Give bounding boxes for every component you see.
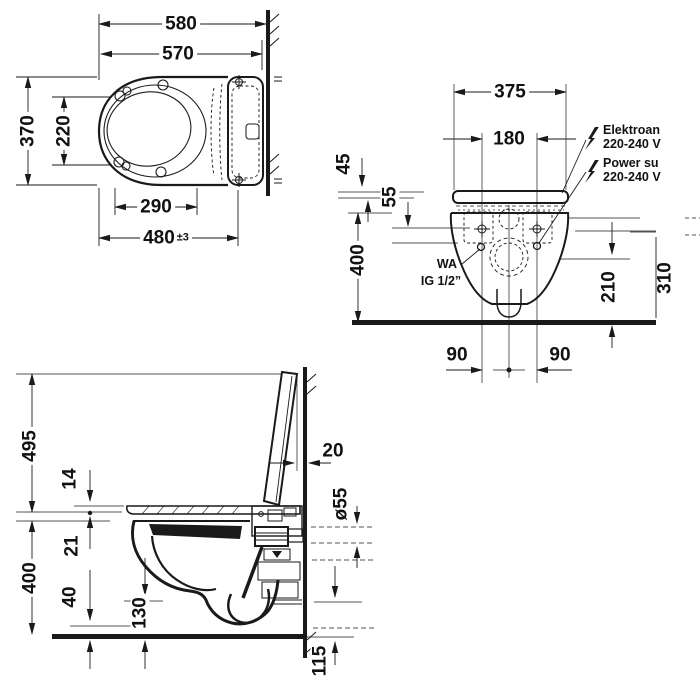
technical-drawing-page: 580 570 370 220 290 480±3 375 180 45 55 … (0, 0, 700, 700)
dim-label-210: 210 (600, 268, 619, 306)
dim-label-180: 180 (490, 130, 528, 149)
lightning-icon (585, 127, 599, 150)
dim-label-55: 55 (381, 183, 400, 210)
dim-label-20: 20 (319, 442, 346, 461)
dim-label-220: 220 (55, 112, 74, 150)
dim-label-14: 14 (61, 465, 80, 492)
dim-label-480-value: 480 (143, 228, 175, 249)
side-view (16, 367, 376, 669)
electrical-connection-label-line2: 220-240 V (603, 138, 661, 151)
water-connection-label-line2: IG 1/2” (421, 275, 461, 288)
floor-line-side-view (52, 634, 303, 639)
toilet-top-view (99, 75, 263, 187)
lightning-icon (585, 160, 599, 183)
dim-label-400-front: 400 (349, 241, 368, 279)
dim-label-290: 290 (137, 198, 175, 217)
cropped-edge-mask (671, 246, 700, 312)
electrical-connection-label-line1: Elektroan (603, 124, 660, 137)
dim-label-495: 495 (21, 427, 40, 465)
dim-label-45: 45 (335, 150, 354, 177)
power-supply-label-line1: Power su (603, 157, 659, 170)
dim-label-115: 115 (311, 643, 330, 680)
power-supply-label-line2: 220-240 V (603, 171, 661, 184)
toilet-front-view (451, 191, 569, 317)
dim-label-570: 570 (159, 45, 197, 64)
technical-drawing-canvas (0, 0, 700, 700)
open-lid-side-view (264, 372, 297, 505)
dim-label-480-tolerance: ±3 (175, 232, 189, 244)
wall-section-side-view (303, 367, 316, 658)
dim-label-90-right: 90 (546, 346, 573, 365)
dim-label-outlet-diameter: ø55 (332, 485, 351, 524)
water-connection-label-line1: WA (437, 258, 457, 271)
dim-label-21: 21 (63, 532, 82, 559)
dim-label-370: 370 (19, 112, 38, 150)
dim-label-90-left: 90 (443, 346, 470, 365)
dim-label-400-side: 400 (21, 559, 40, 597)
dim-label-40: 40 (61, 583, 80, 610)
toilet-side-view (88, 506, 303, 624)
wall-section-top-view (266, 10, 282, 196)
water-connection-point (478, 244, 485, 251)
floor-line-front-view (352, 320, 656, 325)
dim-label-580: 580 (162, 15, 200, 34)
dim-label-480: 480±3 (140, 229, 192, 248)
dim-label-375: 375 (491, 83, 529, 102)
dim-label-130: 130 (131, 594, 150, 632)
